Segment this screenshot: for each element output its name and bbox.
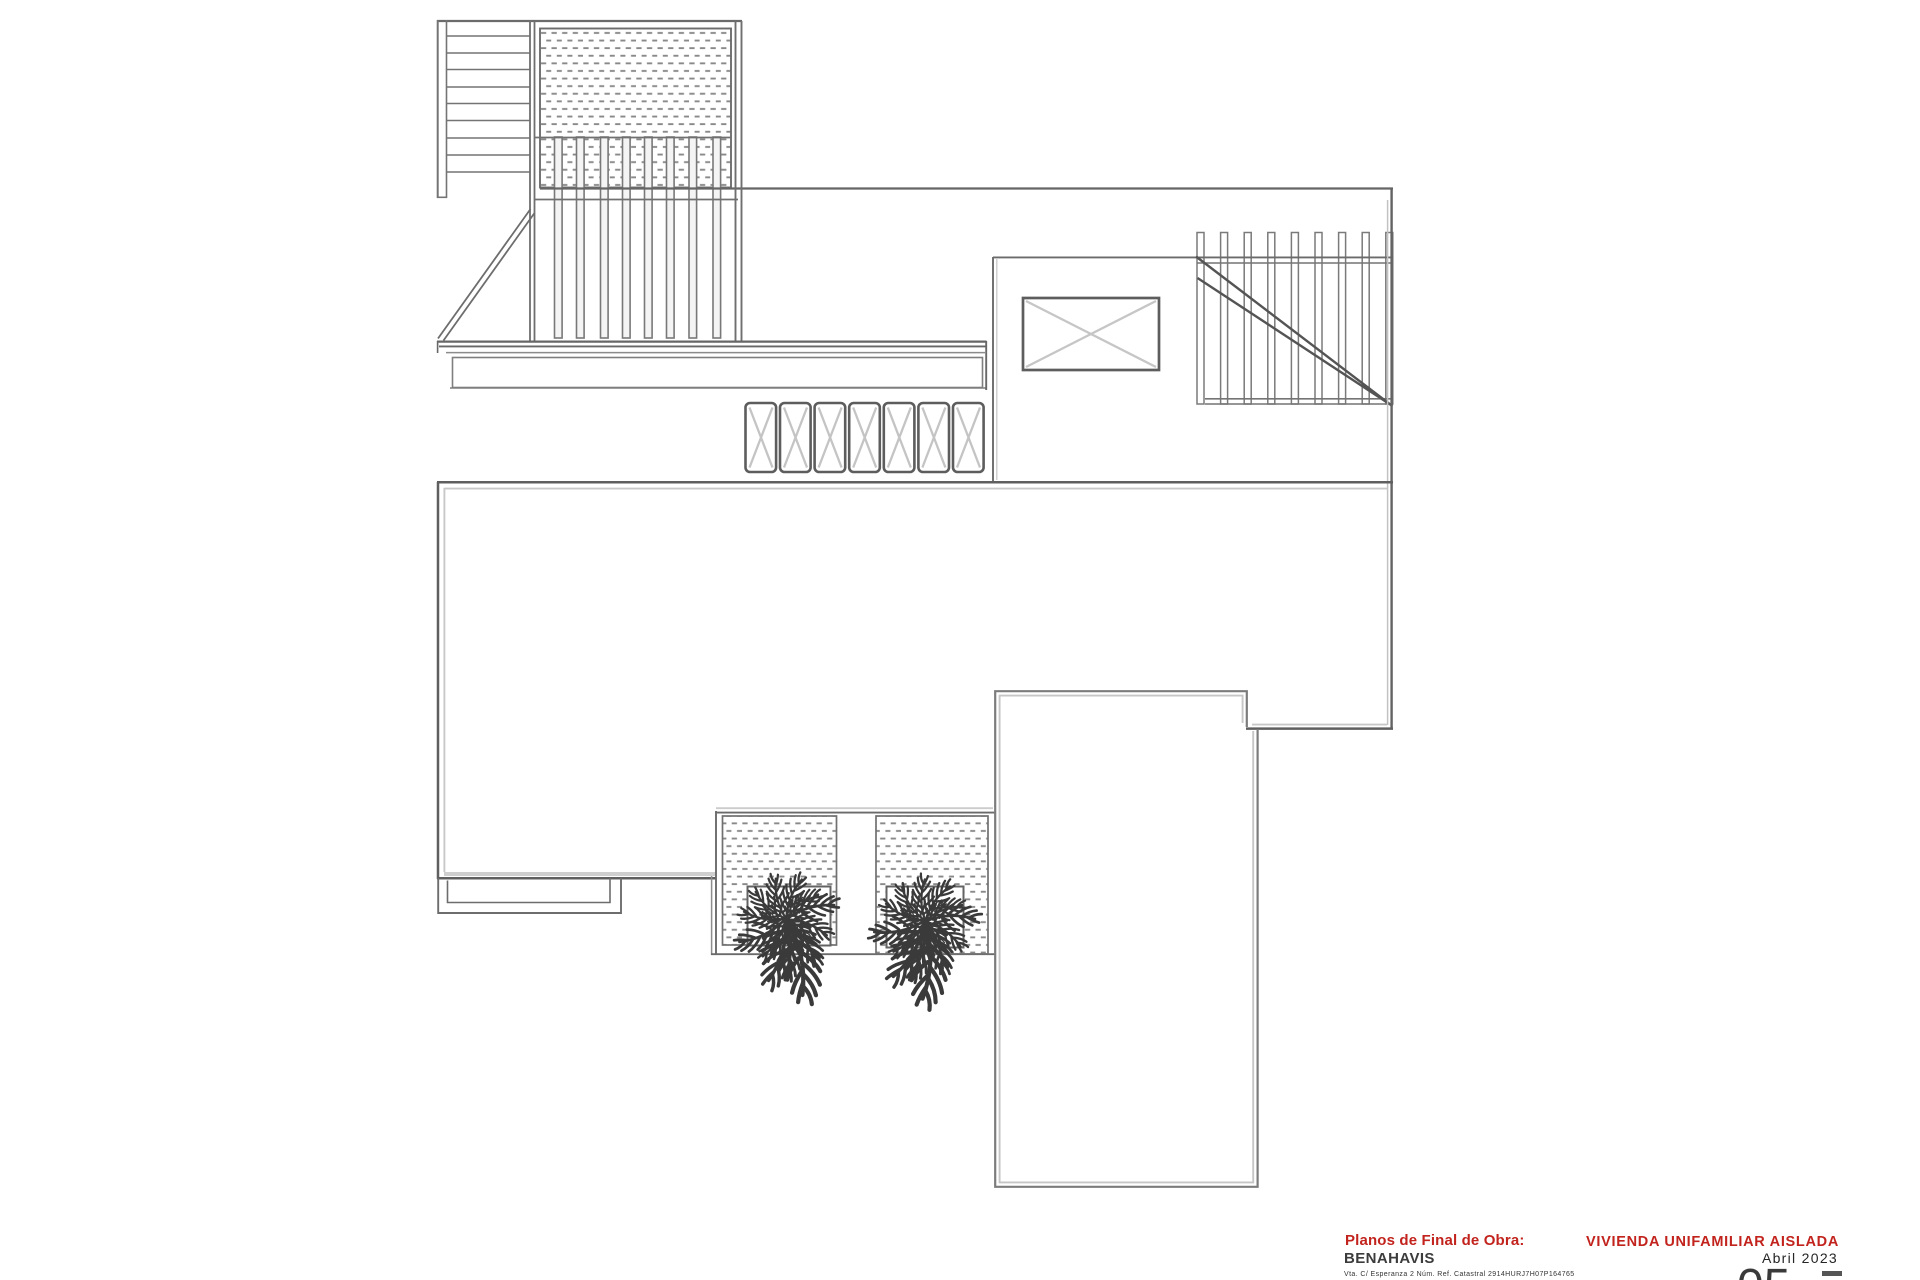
svg-text:VIVIENDA UNIFAMILIAR AISLADA: VIVIENDA UNIFAMILIAR AISLADA xyxy=(1586,1234,1839,1250)
svg-text:Planos de Final de Obra:: Planos de Final de Obra: xyxy=(1345,1232,1524,1249)
svg-text:Vta. C/ Esperanza 2 Núm. Ref.: Vta. C/ Esperanza 2 Núm. Ref. Catastral … xyxy=(1344,1271,1575,1278)
svg-text:05: 05 xyxy=(1737,1260,1790,1280)
svg-text:BENAHAVIS: BENAHAVIS xyxy=(1344,1250,1435,1267)
